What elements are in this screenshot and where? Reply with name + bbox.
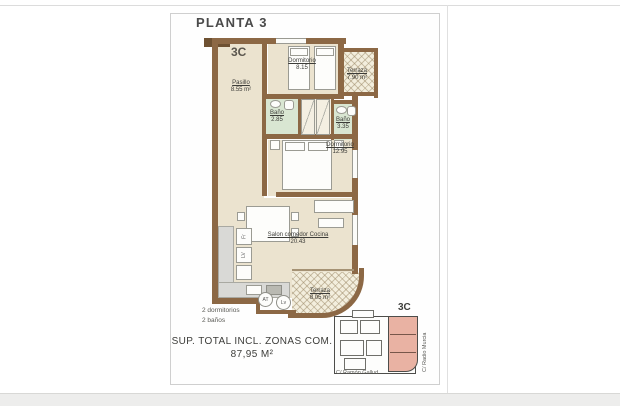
keyplan-highlighted-unit bbox=[388, 316, 418, 372]
keyplan-stair-core bbox=[352, 310, 374, 318]
keyplan-room bbox=[344, 358, 366, 370]
page-title: PLANTA 3 bbox=[196, 15, 268, 30]
wall-terraza-top bbox=[344, 48, 378, 52]
page-edge-top bbox=[0, 5, 620, 6]
pillow bbox=[290, 48, 308, 56]
wall-pasillo-right bbox=[262, 44, 267, 98]
bathroom-count: 2 baños bbox=[202, 316, 225, 325]
washer-circle: Lv bbox=[276, 295, 291, 310]
keyplan-unit-divider bbox=[390, 334, 416, 335]
at-circle: AT bbox=[258, 292, 273, 307]
sofa bbox=[314, 200, 354, 213]
label-bano-1: Baño 2.85 bbox=[259, 110, 295, 124]
wall-bottom-left bbox=[212, 298, 260, 304]
label-terraza-top: Terraza 7.90 m² bbox=[339, 68, 375, 82]
keyplan-room bbox=[340, 320, 358, 334]
wall-bano2-top bbox=[332, 100, 354, 104]
chair bbox=[291, 212, 299, 221]
pillow bbox=[285, 142, 305, 151]
page-edge-right bbox=[447, 5, 448, 393]
keyplan-unit-label: 3C bbox=[398, 302, 411, 313]
chair bbox=[237, 212, 245, 221]
label-salon: Salon comedor Cocina 20.43 bbox=[238, 232, 358, 246]
keyplan-room bbox=[366, 340, 382, 356]
street-label-bottom: C/ Ramón Gallud bbox=[336, 370, 378, 376]
toilet-icon bbox=[284, 100, 294, 110]
at-label: AT bbox=[262, 297, 268, 303]
terrace-door-line bbox=[292, 269, 354, 271]
washer-label: Lv bbox=[281, 300, 286, 306]
keyplan-room bbox=[360, 320, 380, 334]
toilet-icon bbox=[347, 106, 356, 116]
keyplan-room bbox=[340, 340, 364, 356]
label-dormitorio-2: Dormitorio 12.95 bbox=[318, 142, 362, 156]
closet-door bbox=[301, 99, 315, 135]
scanned-floorplan-page: PLANTA 3 bbox=[0, 0, 620, 406]
label-dormitorio-1: Dormitorio 8.15 bbox=[280, 58, 324, 72]
sink-icon bbox=[270, 100, 281, 108]
plan-unit-label: 3C bbox=[231, 45, 246, 59]
bedroom-count: 2 dormitorios bbox=[202, 306, 240, 315]
sink-icon bbox=[336, 106, 347, 114]
total-surface-value: 87,95 M² bbox=[152, 349, 352, 360]
coffee-table bbox=[318, 218, 344, 228]
label-bano-2: Baño 3.35 bbox=[325, 117, 361, 131]
window-top bbox=[276, 38, 306, 44]
pillow bbox=[316, 48, 334, 56]
kitchen-cabinet bbox=[236, 265, 252, 280]
wall-dorm2-bottom bbox=[276, 192, 356, 197]
label-terraza-bottom: Terraza 8.05 m² bbox=[294, 288, 346, 302]
wall-dorm2-left bbox=[262, 139, 267, 196]
dishwasher-label: LV bbox=[237, 248, 251, 262]
street-label-right: C/ Radio Murcia bbox=[422, 316, 428, 372]
keyplan-unit-divider bbox=[390, 352, 416, 353]
room-salon-corridor bbox=[218, 136, 264, 198]
total-surface-label: SUP. TOTAL INCL. ZONAS COM. bbox=[152, 336, 352, 347]
wall-terraza-bottom bbox=[344, 92, 378, 96]
nightstand bbox=[270, 140, 280, 150]
dishwasher: LV bbox=[236, 247, 252, 263]
label-pasillo: Pasillo 8.55 m² bbox=[223, 80, 259, 94]
page-edge-bottom bbox=[0, 393, 620, 406]
